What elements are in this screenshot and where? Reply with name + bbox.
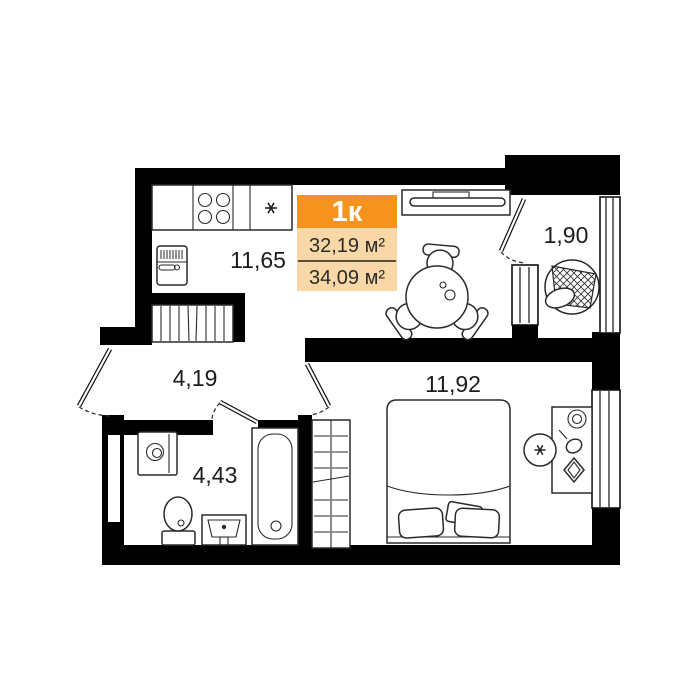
- dining-set-icon: [384, 244, 490, 342]
- bedroom-area-label: 11,92: [425, 371, 481, 397]
- toilet-icon: [162, 497, 195, 545]
- desk-chair-icon: [524, 434, 556, 466]
- hallway-area-label: 4,19: [173, 365, 218, 391]
- wardrobe-icon: [312, 420, 350, 548]
- bathroom-door-icon: [212, 402, 257, 422]
- living-area-value: 32,19 м²: [309, 235, 385, 257]
- balcony-glazing-window: [600, 197, 620, 333]
- hallway-closet-icon: [152, 305, 233, 342]
- pillow: [454, 508, 499, 538]
- fridge-icon: [157, 246, 187, 285]
- dining-table-icon: [406, 266, 468, 328]
- apartment-info-badge: 1к 32,19 м² 34,09 м²: [297, 195, 397, 291]
- wall-shaft: [108, 435, 120, 522]
- hanging-chair-icon: [543, 260, 599, 314]
- floor-plan: 11,65 1,90 4,19 4,43 11,92 1к 32,19 м² 3…: [0, 0, 700, 700]
- bathroom-area-label: 4,43: [193, 462, 238, 488]
- washing-machine-icon: [138, 432, 177, 475]
- washbasin-icon: [202, 515, 246, 545]
- bedroom-window: [592, 390, 620, 508]
- entrance-door-icon: [79, 349, 112, 416]
- tv-unit-icon: [402, 190, 510, 215]
- balcony-partition-window: [512, 265, 538, 325]
- balcony-area-label: 1,90: [544, 222, 589, 248]
- pillow: [398, 507, 444, 538]
- kitchen-living-area-label: 11,65: [230, 247, 286, 273]
- bedroom-door-icon: [307, 364, 329, 415]
- desk-icon: [552, 407, 592, 493]
- bed-icon: [387, 400, 510, 543]
- apartment-type-label: 1к: [332, 196, 363, 228]
- floor-plan-canvas: 11,65 1,90 4,19 4,43 11,92 1к 32,19 м² 3…: [0, 0, 700, 700]
- total-area-value: 34,09 м²: [309, 267, 385, 289]
- bathtub-icon: [252, 428, 298, 545]
